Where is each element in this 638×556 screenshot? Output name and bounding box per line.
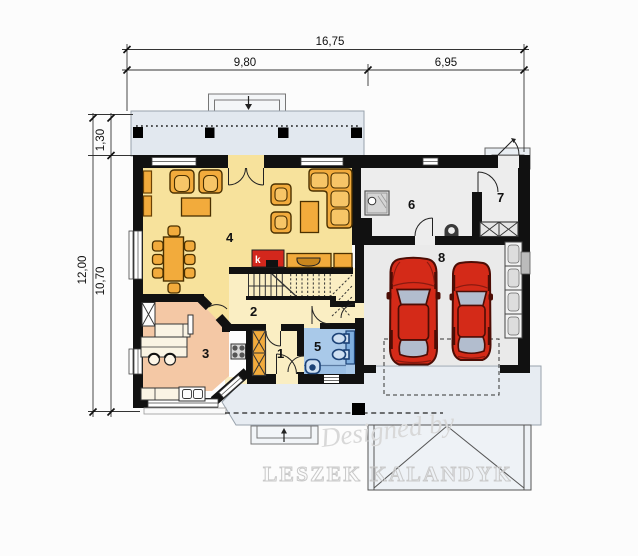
svg-text:7: 7 [497,190,504,205]
svg-text:9,80: 9,80 [234,57,256,69]
svg-text:3: 3 [202,346,209,361]
svg-text:5: 5 [314,339,321,354]
svg-text:10,70: 10,70 [95,267,107,296]
svg-text:LESZEK KALANDYK: LESZEK KALANDYK [263,462,513,486]
svg-text:6,95: 6,95 [435,57,457,69]
svg-text:12,00: 12,00 [77,256,89,285]
svg-text:k: k [255,255,261,266]
svg-text:1: 1 [277,346,284,361]
svg-text:2: 2 [250,304,257,319]
svg-text:4: 4 [226,230,234,245]
svg-text:6: 6 [408,197,415,212]
svg-text:16,75: 16,75 [316,36,345,48]
svg-text:8: 8 [438,250,445,265]
svg-text:1,30: 1,30 [95,129,107,151]
